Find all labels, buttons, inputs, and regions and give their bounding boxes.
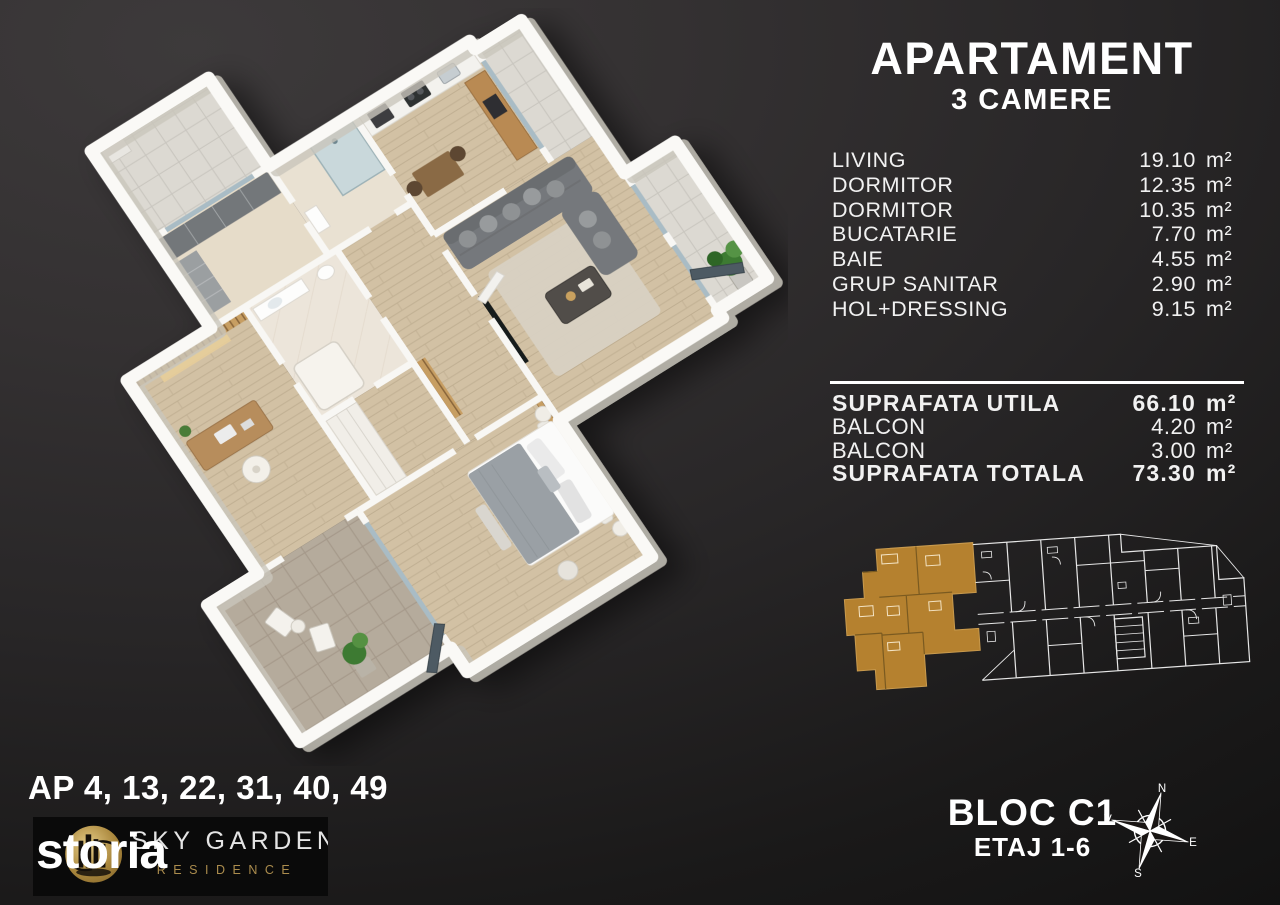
compass-south-label: S: [1134, 868, 1142, 879]
room-area-list: LIVING19.10m² DORMITOR12.35m² DORMITOR10…: [832, 148, 1244, 322]
room-row: HOL+DRESSING9.15m²: [832, 297, 1244, 322]
page-title: APARTAMENT 3 CAMERE: [822, 34, 1242, 116]
summary-divider: [830, 381, 1244, 384]
compass-north-label: N: [1158, 783, 1166, 795]
room-row: BAIE4.55m²: [832, 247, 1244, 272]
summary-row: SUPRAFATA UTILA66.10m²: [832, 392, 1244, 415]
compass-icon: N E S V: [1100, 779, 1200, 879]
apartment-numbers: AP 4, 13, 22, 31, 40, 49: [28, 769, 388, 807]
storia-watermark: storia: [36, 822, 166, 880]
compass-west-label: V: [1104, 814, 1112, 826]
summary-row: BALCON3.00m²: [832, 439, 1244, 462]
room-row: GRUP SANITAR2.90m²: [832, 272, 1244, 297]
building-floorplan: [826, 528, 1256, 706]
title-line1: APARTAMENT: [822, 34, 1242, 84]
poster-canvas: APARTAMENT 3 CAMERE LIVING19.10m² DORMIT…: [0, 0, 1280, 905]
summary-row: SUPRAFATA TOTALA73.30m²: [832, 462, 1244, 485]
area-summary: SUPRAFATA UTILA66.10m² BALCON4.20m² BALC…: [832, 392, 1244, 486]
compass-east-label: E: [1189, 837, 1197, 849]
summary-row: BALCON4.20m²: [832, 415, 1244, 438]
room-row: LIVING19.10m²: [832, 148, 1244, 173]
building-linework: [973, 528, 1250, 680]
room-row: BUCATARIE7.70m²: [832, 222, 1244, 247]
apartment-3d-floorplan: [8, 8, 788, 766]
title-line2: 3 CAMERE: [822, 84, 1242, 116]
room-row: DORMITOR10.35m²: [832, 198, 1244, 223]
highlighted-unit: [841, 543, 982, 692]
room-row: DORMITOR12.35m²: [832, 173, 1244, 198]
